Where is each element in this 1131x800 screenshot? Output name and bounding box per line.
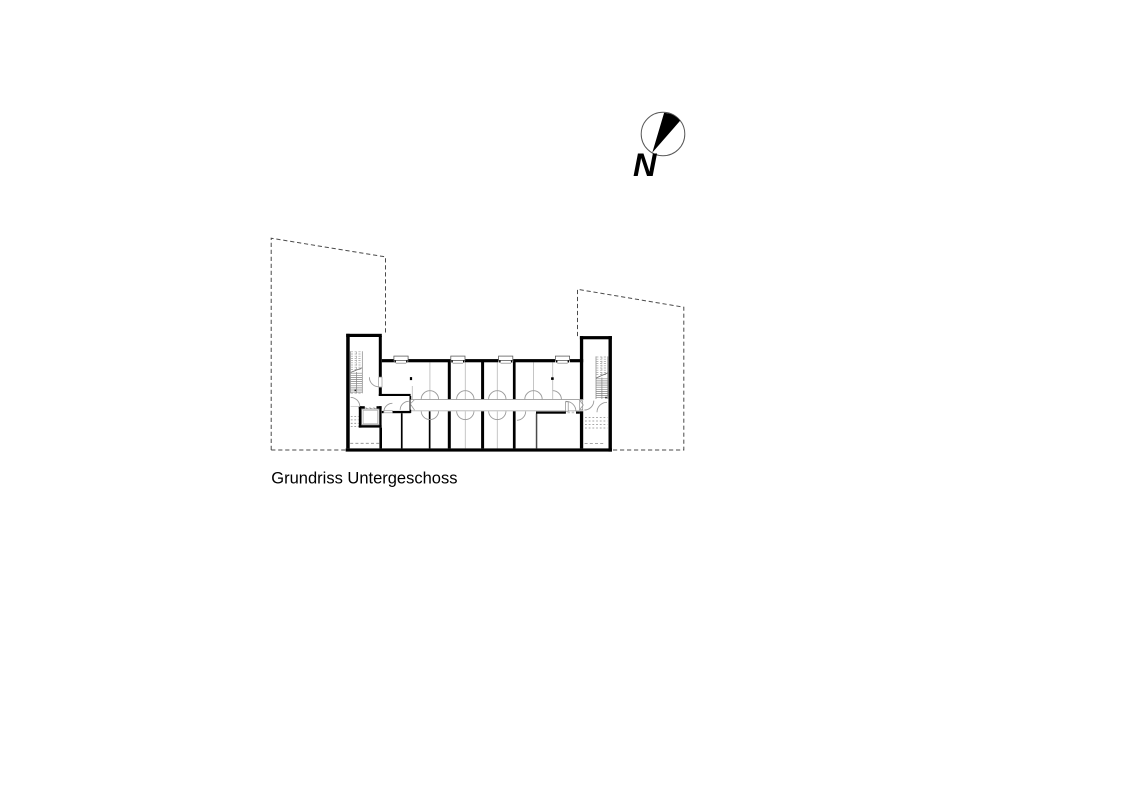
svg-text:N: N (633, 147, 658, 183)
svg-text:Grundriss Untergeschoss: Grundriss Untergeschoss (271, 470, 457, 488)
